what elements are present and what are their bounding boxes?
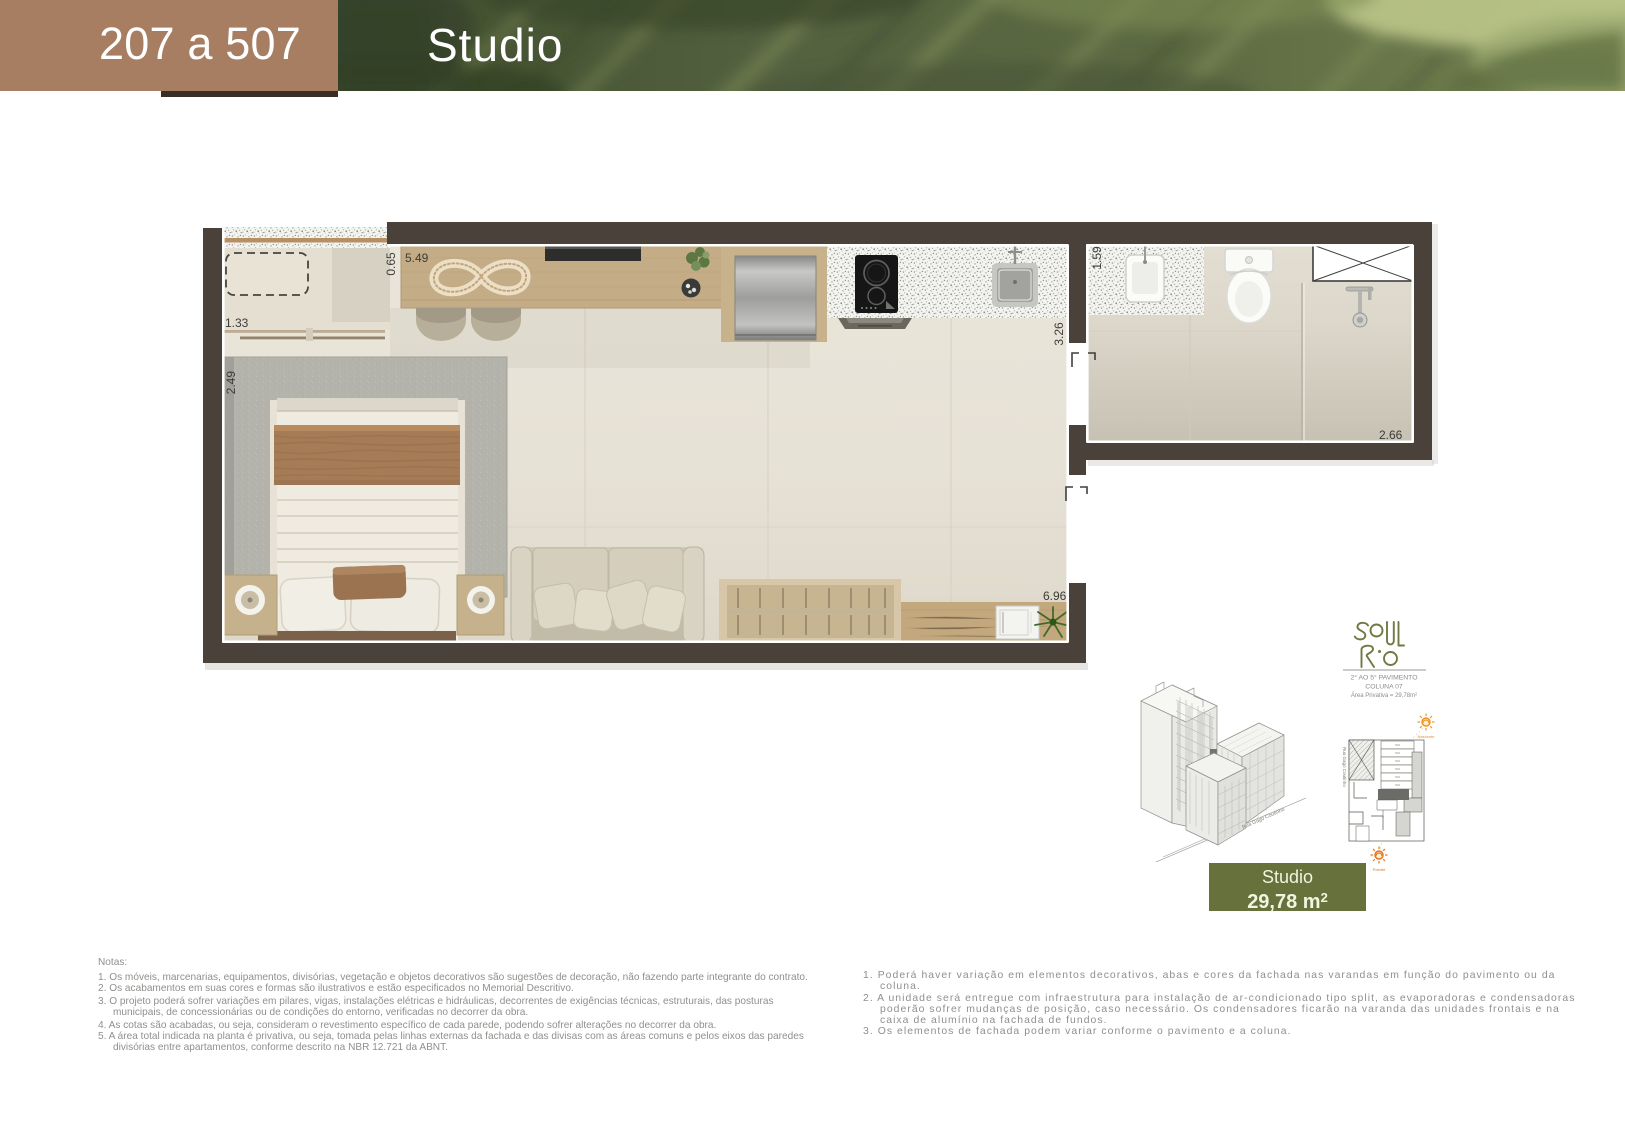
svg-text:0.65: 0.65 xyxy=(384,252,398,276)
svg-text:Área Privativa = 29,78m²: Área Privativa = 29,78m² xyxy=(1351,692,1417,699)
svg-text:2.49: 2.49 xyxy=(224,371,238,395)
svg-text:COLUNA 07: COLUNA 07 xyxy=(1365,684,1403,691)
svg-text:Rua Gago Coutinho: Rua Gago Coutinho xyxy=(1342,747,1347,787)
svg-text:1.59: 1.59 xyxy=(1090,246,1104,270)
svg-text:Poente: Poente xyxy=(1373,867,1386,872)
svg-text:2.66: 2.66 xyxy=(1379,428,1403,442)
svg-text:2° AO 5° PAVIMENTO: 2° AO 5° PAVIMENTO xyxy=(1350,674,1417,682)
svg-text:5.49: 5.49 xyxy=(405,251,429,265)
svg-text:Nascente: Nascente xyxy=(1418,734,1436,739)
svg-text:1.33: 1.33 xyxy=(225,316,249,330)
svg-text:6.96: 6.96 xyxy=(1043,589,1067,603)
svg-text:3.26: 3.26 xyxy=(1052,322,1066,346)
